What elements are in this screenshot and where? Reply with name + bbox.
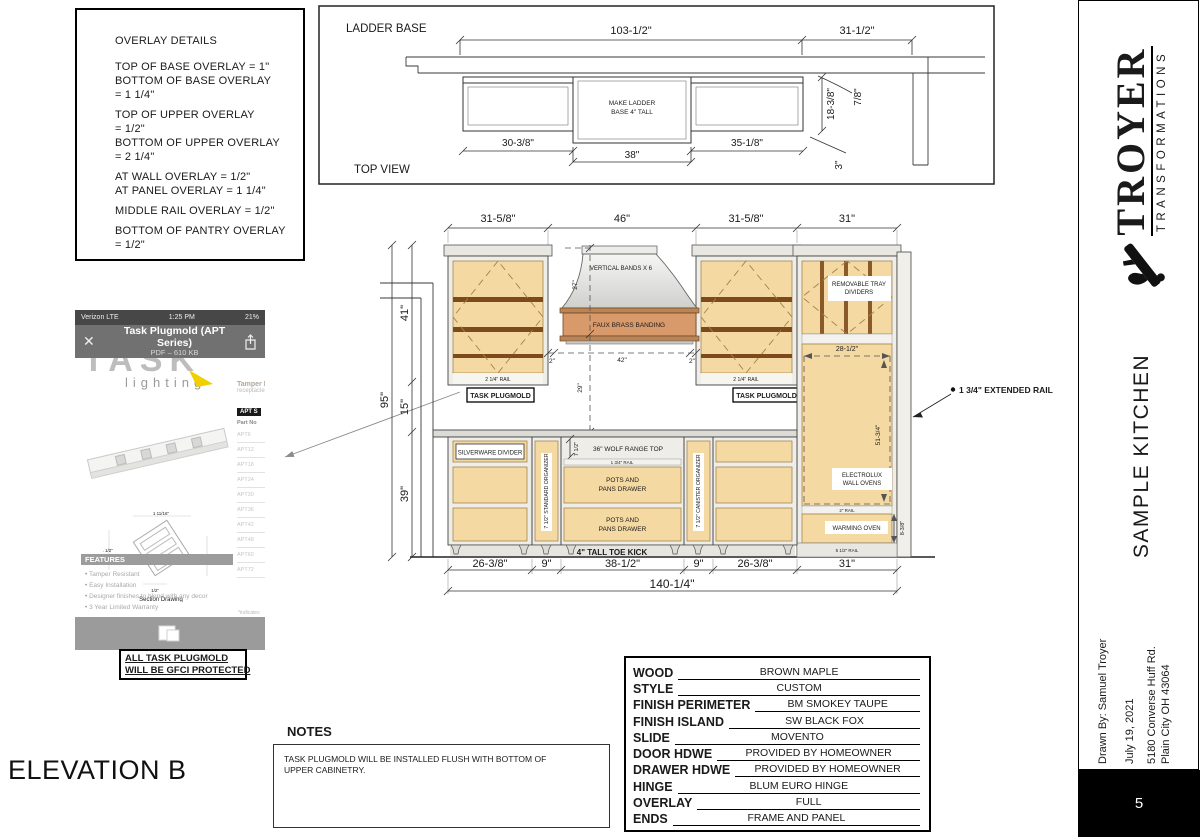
pots-pans-label: PANS DRAWER <box>599 486 647 493</box>
tall-cabinet: REMOVABLE TRAY DIVIDERS 28-1/2" 51-3/4" … <box>793 245 911 557</box>
spec-label: OVERLAY <box>633 796 692 810</box>
wall-ovens-label: ELECTROLUX <box>842 473 882 479</box>
spec-row: WOODBROWN MAPLE <box>633 665 920 680</box>
silverware-divider-label: SILVERWARE DIVIDER <box>458 451 523 457</box>
notes-box: TASK PLUGMOLD WILL BE INSTALLED FLUSH WI… <box>273 744 610 828</box>
phone-pdf-body: TASK lighting Tamper Resista receptacles… <box>75 358 265 650</box>
yellow-swoosh <box>187 368 217 390</box>
ov-line: AT WALL OVERLAY = 1/2" <box>115 170 297 184</box>
spec-row: DOOR HDWEPROVIDED BY HOMEOWNER <box>633 746 920 761</box>
spec-row: FINISH PERIMETERBM SMOKEY TAUPE <box>633 697 920 712</box>
phone-screenshot: Verizon LTE 1:25 PM 21% ✕ Task Plugmold … <box>75 310 265 650</box>
hood-bands-label: VERTICAL BANDS X 6 <box>590 266 653 272</box>
extended-rail-label: 1 3/4" EXTENDED RAIL <box>959 385 1053 395</box>
ov-line: TOP OF BASE OVERLAY = 1" <box>115 60 297 74</box>
spec-row: FINISH ISLANDSW BLACK FOX <box>633 714 920 729</box>
ft-item: Easy Installation <box>85 580 235 591</box>
overlay-details-box: OVERLAY DETAILS TOP OF BASE OVERLAY = 1"… <box>75 8 305 261</box>
gfci-note-line: ALL TASK PLUGMOLD <box>125 653 241 665</box>
apt-series-chip: APT S <box>237 408 261 416</box>
range-hood: VERTICAL BANDS X 6 FAUX BRASS BANDING 27… <box>544 244 700 436</box>
spec-label: ENDS <box>633 812 668 826</box>
dim-label: 29" <box>577 383 584 393</box>
close-icon: ✕ <box>83 333 105 350</box>
ft-item: Tamper Resistant <box>85 569 235 580</box>
task-plugmold-callouts: TASK PLUGMOLD TASK PLUGMOLD <box>467 388 800 402</box>
bottom-dimensions: 26-3/8" 9" 38-1/2" 9" 26-3/8" 31" 140-1/… <box>444 558 901 595</box>
dim-label: 26-3/8" <box>472 558 507 570</box>
spec-value: CUSTOM <box>678 682 920 696</box>
troyer-logo: TROYER TRANSFORMATIONS <box>1085 21 1195 321</box>
ov-line: = 1 1/4" <box>115 88 297 102</box>
phone-bottom-bar <box>75 617 265 650</box>
part-row: APT42 <box>237 518 265 533</box>
dim-label: 26-3/8" <box>737 558 772 570</box>
phone-status-bar: Verizon LTE 1:25 PM 21% <box>75 310 265 325</box>
dim-label: 31" <box>839 558 855 570</box>
dim-label: 18-3/8" <box>826 88 837 120</box>
spec-label: FINISH ISLAND <box>633 715 724 729</box>
wall-ovens-label: WALL OVENS <box>843 481 882 487</box>
spec-row: HINGEBLUM EURO HINGE <box>633 779 920 794</box>
title-block-sidebar: TROYER TRANSFORMATIONS SAMPLE KITCHEN Dr… <box>1078 0 1199 770</box>
drawn-by-label: Drawn By: Samuel Troyer <box>1097 602 1113 764</box>
spec-label: FINISH PERIMETER <box>633 698 750 712</box>
dim-label: 28-1/2" <box>836 346 859 353</box>
dim-label: 2" <box>549 358 556 365</box>
page-number-box: 5 <box>1078 770 1200 837</box>
spec-row: STYLECUSTOM <box>633 681 920 696</box>
brass-banding-label: FAUX BRASS BANDING <box>593 322 665 329</box>
part-row: APT60 <box>237 548 265 563</box>
ladder-base-top-view: LADDER BASE TOP VIEW MAKE LADDER BASE 4"… <box>318 5 995 185</box>
rail-label: 5 1/2" RAIL <box>836 548 859 553</box>
range-top-label: 36" WOLF RANGE TOP <box>593 446 663 453</box>
extended-rail-callout: 1 3/4" EXTENDED RAIL <box>913 385 1053 418</box>
ov-line: BOTTOM OF PANTRY OVERLAY <box>115 224 297 238</box>
base-cabinets: SILVERWARE DIVIDER 7 1/2" STANDARD ORGAN… <box>433 430 797 557</box>
dim-label: 39" <box>399 486 411 502</box>
dim-label: 1 11/16" <box>153 511 170 516</box>
clock-label: 1:25 PM <box>169 314 195 321</box>
dim-label: 9" <box>693 558 703 570</box>
upper-cabinet-right: 2 1/4" RAIL <box>692 245 801 385</box>
dim-label: 35-1/8" <box>731 138 763 149</box>
gfci-note-box: ALL TASK PLUGMOLD WILL BE GFCI PROTECTED <box>119 649 247 680</box>
spec-label: HINGE <box>633 780 673 794</box>
dim-label: 103-1/2" <box>610 25 651 37</box>
ov-line: BOTTOM OF BASE OVERLAY <box>115 74 297 88</box>
pdf-subtitle: PDF – 610 KB <box>105 349 244 358</box>
elevation-b-drawing: 31-5/8" 46" 31-5/8" 31" 95" 41" 15" 39" … <box>380 210 1070 610</box>
ov-line: MIDDLE RAIL OVERLAY = 1/2" <box>115 204 297 218</box>
spec-row: ENDSFRAME AND PANEL <box>633 811 920 826</box>
part-row: APT24 <box>237 473 265 488</box>
spec-value: BM SMOKEY TAUPE <box>755 698 920 712</box>
part-no-header: Part No <box>237 420 265 426</box>
spec-row: OVERLAYFULL <box>633 795 920 810</box>
date-label: July 19, 2021 <box>1124 669 1140 764</box>
gfci-note-line: WILL BE GFCI PROTECTED <box>125 665 241 677</box>
standard-organizer-label: 7 1/2" STANDARD ORGANIZER <box>544 453 550 529</box>
pots-pans-label: PANS DRAWER <box>599 526 647 533</box>
phone-pdf-header: ✕ Task Plugmold (APT Series) PDF – 610 K… <box>75 325 265 358</box>
spec-value: MOVENTO <box>675 731 920 745</box>
brand-subtitle: TRANSFORMATIONS <box>1156 50 1168 232</box>
ov-line: = 1/2" <box>115 122 297 136</box>
brand-rule <box>1151 46 1153 235</box>
part-number-list: APT6APT12APT18APT24APT30APT36APT42APT48A… <box>237 428 265 578</box>
task-plugmold-label: TASK PLUGMOLD <box>470 393 531 400</box>
warming-oven-label: WARMING OVEN <box>832 526 880 532</box>
plugmold-product-image <box>81 396 233 504</box>
spec-value: BLUM EURO HINGE <box>678 780 920 794</box>
spec-label: SLIDE <box>633 731 670 745</box>
address-line: Plain City OH 43064 <box>1160 614 1174 764</box>
features-list: Tamper ResistantEasy InstallationDesigne… <box>85 569 235 613</box>
dim-label: 30-3/8" <box>502 138 534 149</box>
dim-label: 41" <box>399 305 411 321</box>
ladder-note: BASE 4" TALL <box>611 109 653 116</box>
rail-label: 2 1/4" RAIL <box>485 377 511 383</box>
dim-label: 38" <box>625 150 640 161</box>
sheet-title: ELEVATION B <box>8 755 187 786</box>
spec-label: DRAWER HDWE <box>633 763 730 777</box>
dim-label: 2" <box>689 358 696 365</box>
brand-name: TROYER <box>1112 46 1150 235</box>
part-row: APT36 <box>237 503 265 518</box>
dim-label: 140-1/4" <box>650 577 695 591</box>
spec-value: FULL <box>697 796 920 810</box>
dim-label: 31-1/2" <box>839 25 874 37</box>
dim-label: 31-5/8" <box>480 213 515 225</box>
canister-organizer-label: 7 1/2" CANISTER ORGANIZER <box>696 454 702 528</box>
ov-line: = 1/2" <box>115 238 297 252</box>
dim-label: 7 1/2" <box>574 442 580 456</box>
spec-label: DOOR HDWE <box>633 747 712 761</box>
task-plugmold-label: TASK PLUGMOLD <box>736 393 797 400</box>
rail-label: 2 1/4" RAIL <box>733 377 759 383</box>
ft-item: 3 Year Limited Warranty <box>85 602 235 613</box>
ladder-note: MAKE LADDER <box>609 100 656 107</box>
part-row: APT30 <box>237 488 265 503</box>
part-row: APT72 <box>237 563 265 578</box>
part-row: APT18 <box>237 458 265 473</box>
toe-kick-label: 4" TALL TOE KICK <box>577 548 648 557</box>
dim-label: 27" <box>572 280 579 290</box>
specification-table: WOODBROWN MAPLE STYLECUSTOM FINISH PERIM… <box>624 656 931 832</box>
part-row: APT48 <box>237 533 265 548</box>
tray-dividers-label: DIVIDERS <box>845 290 873 296</box>
spec-label: WOOD <box>633 666 673 680</box>
dim-label: 8-3/8" <box>900 521 906 536</box>
dim-label: 31" <box>839 213 855 225</box>
top-view-label: TOP VIEW <box>354 164 410 176</box>
upper-cabinet-left: 2 1/4" RAIL <box>444 245 552 385</box>
spec-value: SW BLACK FOX <box>729 715 920 729</box>
hand-plane-icon <box>1108 238 1172 296</box>
footnote-text: *indicates <box>238 610 260 616</box>
ft-item: Designer finishes to blend with any deco… <box>85 591 235 602</box>
dim-label: 42" <box>617 357 627 364</box>
ov-line: BOTTOM OF UPPER OVERLAY <box>115 136 297 150</box>
dim-label: 9" <box>541 558 551 570</box>
pdf-right-heading: Tamper Resista <box>237 381 265 388</box>
spec-value: PROVIDED BY HOMEOWNER <box>717 747 920 761</box>
dim-label: 15" <box>399 399 411 415</box>
left-dimensions: 95" 41" 15" 39" <box>380 241 416 561</box>
address-line: 5180 Converse Huff Rd. <box>1146 614 1160 764</box>
document-thumbnail-icon <box>157 624 183 644</box>
dim-label: 95" <box>380 392 391 408</box>
share-icon <box>244 334 257 350</box>
page-number: 5 <box>1135 795 1143 812</box>
pdf-right-column: Tamper Resista receptacles and APT S Par… <box>237 381 265 578</box>
pots-pans-label: POTS AND <box>606 477 639 484</box>
pdf-right-subtext: receptacles and <box>237 388 265 394</box>
project-name: SAMPLE KITCHEN <box>1097 351 1187 561</box>
notes-title: NOTES <box>287 724 332 739</box>
rail-label: 1 3/4" RAIL <box>611 460 634 465</box>
dim-label: 3" <box>834 160 845 170</box>
overlay-details-title: OVERLAY DETAILS <box>115 34 297 48</box>
part-row: APT12 <box>237 443 265 458</box>
top-view-title: LADDER BASE <box>346 23 427 35</box>
part-row: APT6 <box>237 428 265 443</box>
battery-label: 21% <box>245 314 259 321</box>
features-header: FEATURES <box>81 554 233 565</box>
spec-value: BROWN MAPLE <box>678 666 920 680</box>
spec-row: SLIDEMOVENTO <box>633 730 920 745</box>
tray-dividers-label: REMOVABLE TRAY <box>832 282 886 288</box>
drawing-sheet: { "colors": {"wood":"#f5d9a2","brass":"#… <box>0 0 1200 837</box>
dim-label: 38-1/2" <box>605 558 640 570</box>
dim-label: 51-3/4" <box>875 424 882 445</box>
pots-pans-label: POTS AND <box>606 517 639 524</box>
spec-row: DRAWER HDWEPROVIDED BY HOMEOWNER <box>633 762 920 777</box>
pdf-title: Task Plugmold (APT Series) <box>105 325 244 349</box>
spec-value: FRAME AND PANEL <box>673 812 920 826</box>
ov-line: AT PANEL OVERLAY = 1 1/4" <box>115 184 297 198</box>
dim-label: 7/8" <box>853 88 864 106</box>
dim-label: 1 1/2" <box>103 548 113 553</box>
dim-label: 31-5/8" <box>728 213 763 225</box>
spec-label: STYLE <box>633 682 673 696</box>
ov-line: TOP OF UPPER OVERLAY <box>115 108 297 122</box>
dim-label: 46" <box>614 213 630 225</box>
ov-line: = 2 1/4" <box>115 150 297 164</box>
carrier-label: Verizon LTE <box>81 314 119 321</box>
notes-body: TASK PLUGMOLD WILL BE INSTALLED FLUSH WI… <box>284 754 564 776</box>
overlay-details-lines: TOP OF BASE OVERLAY = 1"BOTTOM OF BASE O… <box>115 60 297 252</box>
spec-value: PROVIDED BY HOMEOWNER <box>735 763 920 777</box>
rail-label: 2" RAIL <box>839 508 855 513</box>
